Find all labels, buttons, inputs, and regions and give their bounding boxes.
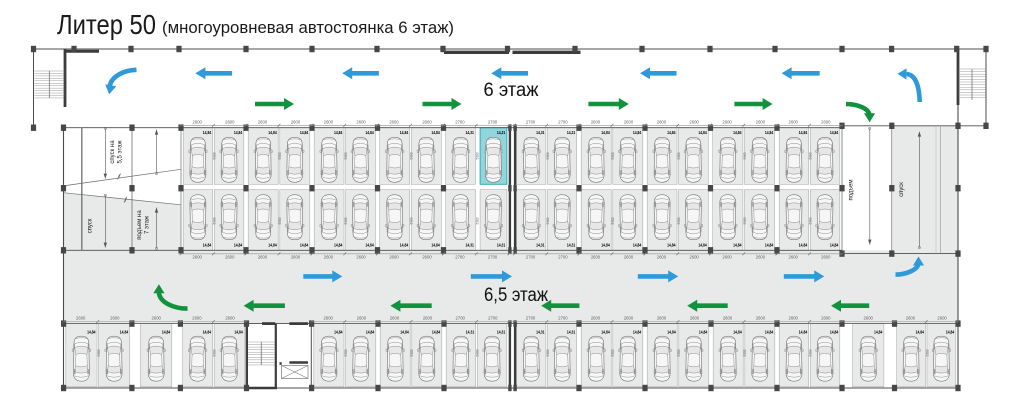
svg-text:2700: 2700 [558,120,568,125]
svg-text:14,84: 14,84 [87,329,96,335]
svg-text:2600: 2600 [225,316,235,321]
svg-text:14,84: 14,84 [268,243,277,249]
svg-text:подъем: подъем [849,179,855,200]
svg-text:2600: 2600 [356,255,366,260]
svg-text:14,84: 14,84 [366,329,375,335]
svg-text:2600: 2600 [422,120,432,125]
svg-text:2600: 2600 [689,255,699,260]
svg-text:2600: 2600 [591,255,601,260]
svg-text:14,84: 14,84 [268,130,277,136]
svg-text:2600: 2600 [689,120,699,125]
svg-text:14,84: 14,84 [365,243,374,249]
svg-text:2600: 2600 [357,316,367,321]
svg-text:2600: 2600 [591,316,601,321]
svg-text:2600: 2600 [356,120,366,125]
svg-text:14,84: 14,84 [432,329,441,335]
svg-text:5300: 5300 [926,349,930,356]
svg-text:2600: 2600 [756,120,766,125]
svg-text:14,84: 14,84 [633,130,642,136]
svg-text:14,84: 14,84 [400,130,409,136]
svg-text:14,31: 14,31 [466,130,475,136]
svg-text:14,84: 14,84 [633,329,642,335]
svg-text:2600: 2600 [423,316,433,321]
svg-text:5300: 5300 [809,349,813,356]
svg-text:14,84: 14,84 [799,130,808,136]
svg-text:7 этаж: 7 этаж [145,216,151,234]
svg-text:14,84: 14,84 [334,329,343,335]
svg-text:14,84: 14,84 [667,243,676,249]
svg-text:5300: 5300 [611,349,615,356]
svg-text:2700: 2700 [558,255,568,260]
svg-text:14,84: 14,84 [400,329,409,335]
svg-text:2600: 2600 [422,255,432,260]
svg-text:5300: 5300 [344,349,348,356]
svg-text:2600: 2600 [821,255,831,260]
svg-text:2600: 2600 [722,120,732,125]
svg-text:5300: 5300 [410,349,414,356]
svg-text:14,84: 14,84 [733,130,742,136]
svg-text:5300: 5300 [809,217,813,224]
svg-text:2600: 2600 [657,316,667,321]
svg-text:14,31: 14,31 [497,243,506,249]
svg-text:14,84: 14,84 [699,329,708,335]
svg-text:5300: 5300 [475,152,479,159]
svg-text:14,31: 14,31 [466,329,475,335]
svg-text:2600: 2600 [756,255,766,260]
svg-text:14,31: 14,31 [567,329,576,335]
svg-text:14,84: 14,84 [334,243,343,249]
svg-text:5300: 5300 [410,217,414,224]
svg-text:спуск: спуск [88,218,94,233]
svg-text:2600: 2600 [291,120,301,125]
svg-text:14,84: 14,84 [698,130,707,136]
svg-text:14,31: 14,31 [497,329,506,335]
svg-text:14,84: 14,84 [733,243,742,249]
svg-text:5300: 5300 [677,349,681,356]
svg-text:14,84: 14,84 [400,243,409,249]
svg-text:2600: 2600 [389,120,399,125]
svg-text:14,84: 14,84 [830,329,839,335]
svg-text:5300: 5300 [677,152,681,159]
svg-text:2600: 2600 [690,316,700,321]
svg-text:2700: 2700 [488,120,498,125]
svg-text:14,84: 14,84 [765,243,774,249]
svg-text:14,84: 14,84 [120,329,129,335]
svg-text:14,84: 14,84 [733,329,742,335]
svg-text:5300: 5300 [344,152,348,159]
svg-text:14,84: 14,84 [633,243,642,249]
svg-text:14,84: 14,84 [799,243,808,249]
svg-text:5300: 5300 [677,217,681,224]
svg-text:14,84: 14,84 [203,329,212,335]
svg-text:14,84: 14,84 [234,329,243,335]
svg-text:спуск: спуск [899,182,905,197]
svg-text:14,31: 14,31 [497,130,506,136]
svg-text:5300: 5300 [213,152,217,159]
svg-text:5300: 5300 [278,152,282,159]
svg-text:2700: 2700 [526,316,536,321]
svg-text:5300: 5300 [476,349,480,356]
svg-text:14,84: 14,84 [162,329,171,335]
svg-text:Литер 50: Литер 50 [57,9,156,40]
svg-text:14,84: 14,84 [203,243,212,249]
svg-text:14,84: 14,84 [203,130,212,136]
svg-text:2600: 2600 [390,316,400,321]
svg-text:2600: 2600 [591,120,601,125]
svg-text:2700: 2700 [488,316,498,321]
svg-text:14,84: 14,84 [601,329,610,335]
svg-text:2600: 2600 [258,255,268,260]
svg-text:14,84: 14,84 [601,130,610,136]
svg-text:подъем на: подъем на [137,210,143,240]
svg-text:14,84: 14,84 [234,243,243,249]
svg-text:5300: 5300 [213,217,217,224]
svg-text:2700: 2700 [455,120,465,125]
svg-text:2700: 2700 [558,316,568,321]
svg-text:14,84: 14,84 [234,130,243,136]
svg-text:14,31: 14,31 [536,329,545,335]
svg-text:2600: 2600 [225,255,235,260]
svg-text:2600: 2600 [821,316,831,321]
svg-text:2600: 2600 [937,316,947,321]
svg-text:14,84: 14,84 [946,329,955,335]
svg-text:2600: 2600 [657,255,667,260]
svg-text:14,84: 14,84 [334,130,343,136]
svg-text:2700: 2700 [488,255,498,260]
svg-text:5300: 5300 [344,217,348,224]
svg-text:14,31: 14,31 [536,243,545,249]
svg-text:5300: 5300 [546,217,550,224]
svg-text:2600: 2600 [324,120,334,125]
svg-text:14,31: 14,31 [536,130,545,136]
svg-text:14,84: 14,84 [667,329,676,335]
svg-text:14,84: 14,84 [874,329,883,335]
svg-text:6,5 этаж: 6,5 этаж [484,285,548,306]
svg-text:2600: 2600 [789,316,799,321]
svg-text:5300: 5300 [97,349,101,356]
svg-text:14,84: 14,84 [365,130,374,136]
svg-text:2600: 2600 [624,316,634,321]
svg-text:14,84: 14,84 [667,130,676,136]
svg-text:2600: 2600 [389,255,399,260]
svg-text:14,31: 14,31 [567,243,576,249]
svg-text:(многоуровневая автостоянка 6: (многоуровневая автостоянка 6 этаж) [162,19,454,37]
svg-text:2600: 2600 [906,316,916,321]
svg-text:2700: 2700 [526,255,536,260]
svg-text:2600: 2600 [110,316,120,321]
svg-text:5300: 5300 [546,349,550,356]
svg-text:2600: 2600 [225,120,235,125]
svg-text:14,84: 14,84 [601,243,610,249]
svg-text:2600: 2600 [657,120,667,125]
svg-text:2700: 2700 [456,316,466,321]
svg-text:14,84: 14,84 [431,130,440,136]
svg-text:5300: 5300 [743,152,747,159]
svg-text:14,84: 14,84 [300,243,309,249]
svg-text:2600: 2600 [723,316,733,321]
svg-text:5300: 5300 [475,217,479,224]
svg-text:2600: 2600 [789,120,799,125]
svg-text:2600: 2600 [324,316,334,321]
svg-text:2600: 2600 [789,255,799,260]
svg-text:2600: 2600 [624,120,634,125]
svg-text:2600: 2600 [152,316,162,321]
svg-text:5300: 5300 [278,217,282,224]
svg-text:14,84: 14,84 [765,329,774,335]
svg-text:2600: 2600 [192,316,202,321]
svg-text:5300: 5300 [809,152,813,159]
svg-text:5300: 5300 [743,349,747,356]
svg-text:14,84: 14,84 [698,243,707,249]
svg-text:2600: 2600 [756,316,766,321]
svg-text:5300: 5300 [546,152,550,159]
svg-text:5300: 5300 [410,152,414,159]
svg-text:2600: 2600 [193,255,203,260]
svg-text:2600: 2600 [258,120,268,125]
svg-text:14,31: 14,31 [466,243,475,249]
svg-text:2600: 2600 [76,316,86,321]
svg-text:2600: 2600 [624,255,634,260]
svg-text:2600: 2600 [722,255,732,260]
svg-text:2600: 2600 [324,255,334,260]
svg-text:5300: 5300 [611,217,615,224]
svg-text:5300: 5300 [213,349,217,356]
svg-text:14,84: 14,84 [765,130,774,136]
svg-text:спуск на: спуск на [110,140,116,164]
svg-text:5300: 5300 [743,217,747,224]
svg-text:2700: 2700 [455,255,465,260]
svg-text:2600: 2600 [821,120,831,125]
svg-text:6 этаж: 6 этаж [484,80,539,101]
svg-text:5,5 этаж: 5,5 этаж [118,141,124,164]
svg-text:14,84: 14,84 [830,130,839,136]
svg-text:14,84: 14,84 [916,329,925,335]
svg-text:14,84: 14,84 [799,329,808,335]
svg-text:5300: 5300 [611,152,615,159]
svg-text:2600: 2600 [193,120,203,125]
svg-text:14,84: 14,84 [431,243,440,249]
svg-text:2600: 2600 [864,316,874,321]
svg-text:14,84: 14,84 [300,130,309,136]
svg-text:2700: 2700 [526,120,536,125]
svg-text:14,31: 14,31 [567,130,576,136]
svg-text:14,84: 14,84 [830,243,839,249]
svg-text:2600: 2600 [291,255,301,260]
